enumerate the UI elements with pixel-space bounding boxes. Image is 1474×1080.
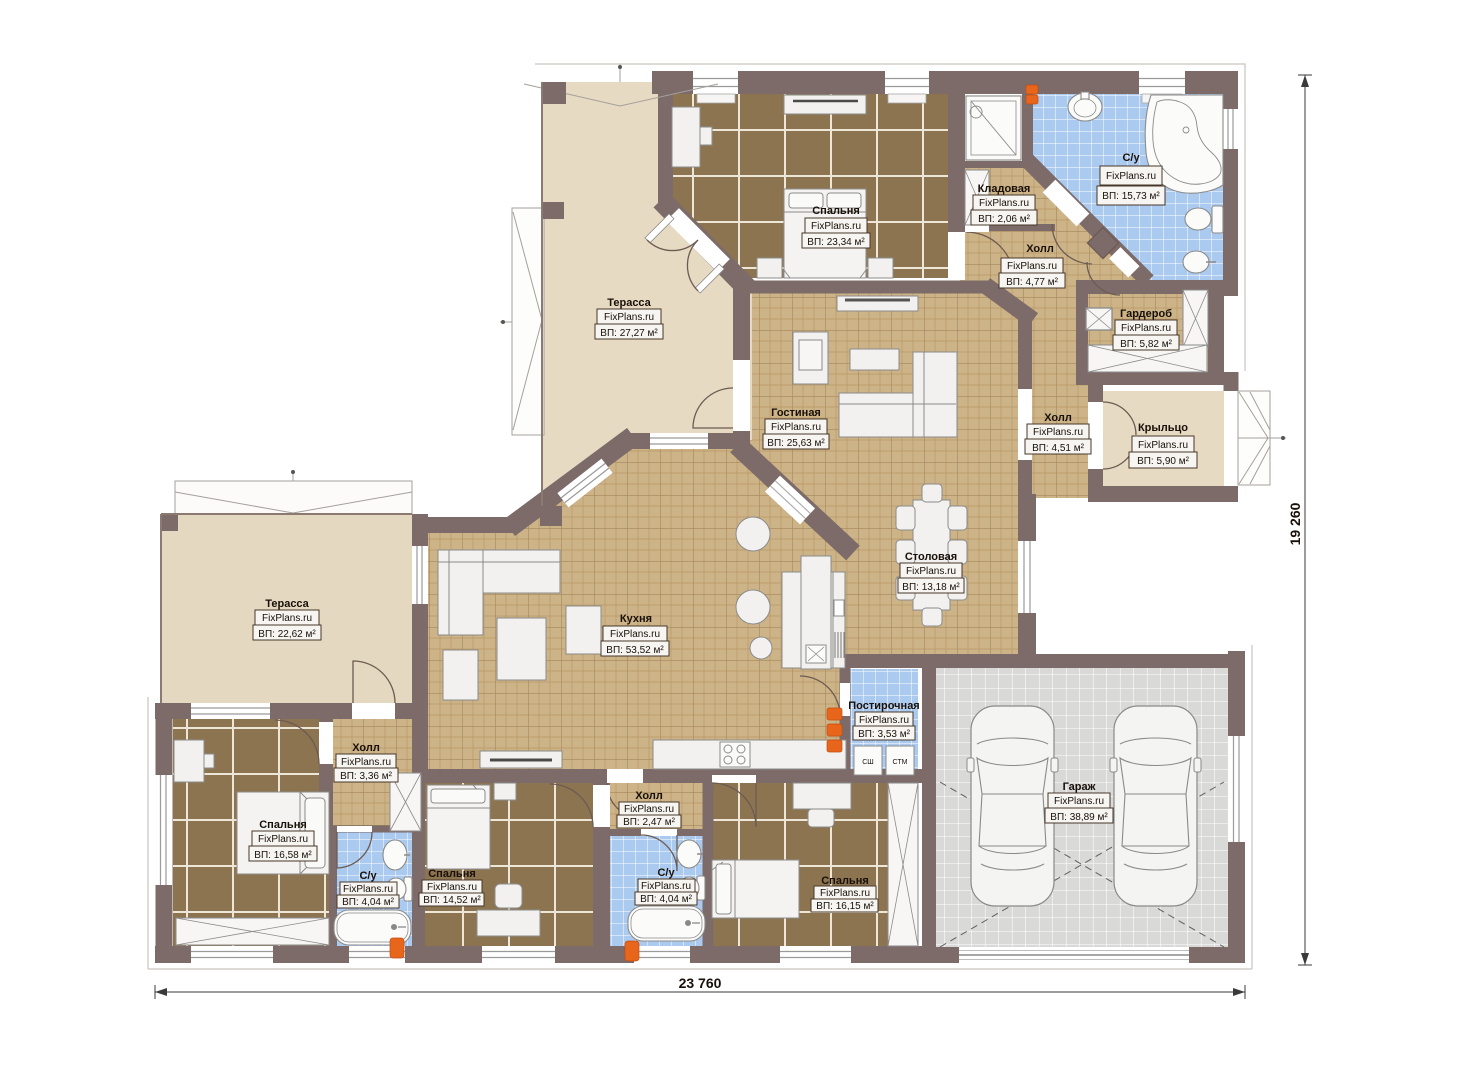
svg-text:ВП: 13,18 м²: ВП: 13,18 м² bbox=[902, 582, 960, 593]
svg-text:Гостиная: Гостиная bbox=[771, 407, 821, 419]
svg-text:FixPlans.ru: FixPlans.ru bbox=[341, 757, 391, 768]
svg-text:Холл: Холл bbox=[352, 742, 380, 754]
svg-text:Гардероб: Гардероб bbox=[1120, 308, 1172, 320]
svg-text:ВП: 27,27 м²: ВП: 27,27 м² bbox=[600, 328, 658, 339]
svg-text:FixPlans.ru: FixPlans.ru bbox=[343, 884, 393, 895]
svg-text:FixPlans.ru: FixPlans.ru bbox=[820, 888, 870, 899]
svg-text:ВП: 4,51 м²: ВП: 4,51 м² bbox=[1032, 443, 1085, 454]
svg-text:Спальня: Спальня bbox=[821, 875, 869, 887]
svg-text:ВП: 16,58 м²: ВП: 16,58 м² bbox=[254, 850, 312, 861]
svg-text:19 260: 19 260 bbox=[1287, 502, 1303, 545]
svg-text:Холл: Холл bbox=[1044, 412, 1072, 424]
svg-text:ВП: 4,04 м²: ВП: 4,04 м² bbox=[342, 897, 395, 908]
svg-text:FixPlans.ru: FixPlans.ru bbox=[859, 715, 909, 726]
svg-text:FixPlans.ru: FixPlans.ru bbox=[771, 422, 821, 433]
svg-text:Кухня: Кухня bbox=[620, 613, 652, 625]
svg-text:FixPlans.ru: FixPlans.ru bbox=[641, 881, 691, 892]
svg-text:ВП: 4,04 м²: ВП: 4,04 м² bbox=[640, 894, 693, 905]
svg-text:Холл: Холл bbox=[1026, 243, 1054, 255]
svg-text:ВП: 2,47 м²: ВП: 2,47 м² bbox=[623, 817, 676, 828]
svg-text:FixPlans.ru: FixPlans.ru bbox=[979, 198, 1029, 209]
svg-text:ВП: 38,89 м²: ВП: 38,89 м² bbox=[1050, 812, 1108, 823]
svg-text:FixPlans.ru: FixPlans.ru bbox=[1121, 323, 1171, 334]
svg-text:FixPlans.ru: FixPlans.ru bbox=[610, 629, 660, 640]
svg-text:Холл: Холл bbox=[635, 790, 663, 802]
svg-text:FixPlans.ru: FixPlans.ru bbox=[624, 804, 674, 815]
svg-text:Постирочная: Постирочная bbox=[848, 700, 919, 712]
svg-text:ВП: 25,63 м²: ВП: 25,63 м² bbox=[767, 438, 825, 449]
svg-text:Спальня: Спальня bbox=[812, 205, 860, 217]
svg-text:ВП: 23,34 м²: ВП: 23,34 м² bbox=[807, 237, 865, 248]
svg-text:FixPlans.ru: FixPlans.ru bbox=[906, 566, 956, 577]
svg-text:Терасса: Терасса bbox=[265, 598, 309, 610]
svg-text:ВП: 3,36 м²: ВП: 3,36 м² bbox=[340, 771, 393, 782]
svg-text:FixPlans.ru: FixPlans.ru bbox=[1106, 171, 1156, 182]
svg-text:Терасса: Терасса bbox=[607, 297, 651, 309]
svg-text:FixPlans.ru: FixPlans.ru bbox=[427, 882, 477, 893]
svg-text:FixPlans.ru: FixPlans.ru bbox=[1138, 440, 1188, 451]
svg-text:ВП: 4,77 м²: ВП: 4,77 м² bbox=[1006, 277, 1059, 288]
svg-text:ВП: 22,62 м²: ВП: 22,62 м² bbox=[258, 629, 316, 640]
svg-text:FixPlans.ru: FixPlans.ru bbox=[811, 221, 861, 232]
svg-text:ВП: 2,06 м²: ВП: 2,06 м² bbox=[978, 214, 1031, 225]
svg-text:Спальня: Спальня bbox=[428, 868, 476, 880]
svg-text:ВП: 16,15 м²: ВП: 16,15 м² bbox=[816, 901, 874, 912]
svg-text:FixPlans.ru: FixPlans.ru bbox=[1033, 427, 1083, 438]
svg-text:Спальня: Спальня bbox=[259, 819, 307, 831]
svg-text:Крыльцо: Крыльцо bbox=[1138, 422, 1188, 434]
svg-text:ВП: 15,73 м²: ВП: 15,73 м² bbox=[1102, 191, 1160, 202]
svg-text:FixPlans.ru: FixPlans.ru bbox=[258, 834, 308, 845]
svg-text:Кладовая: Кладовая bbox=[978, 183, 1031, 195]
svg-text:ВП: 5,90 м²: ВП: 5,90 м² bbox=[1137, 456, 1190, 467]
svg-text:С/у: С/у bbox=[657, 867, 675, 879]
svg-text:ВП: 53,52 м²: ВП: 53,52 м² bbox=[606, 645, 664, 656]
svg-text:СТМ: СТМ bbox=[893, 759, 908, 766]
svg-text:FixPlans.ru: FixPlans.ru bbox=[262, 613, 312, 624]
svg-text:Столовая: Столовая bbox=[905, 551, 957, 563]
svg-text:С/у: С/у bbox=[1122, 152, 1140, 164]
svg-text:23 760: 23 760 bbox=[679, 975, 722, 991]
svg-text:С/у: С/у bbox=[359, 870, 377, 882]
svg-text:ВП: 3,53 м²: ВП: 3,53 м² bbox=[858, 729, 911, 740]
svg-text:ВП: 5,82 м²: ВП: 5,82 м² bbox=[1120, 339, 1173, 350]
svg-text:FixPlans.ru: FixPlans.ru bbox=[1007, 261, 1057, 272]
svg-text:FixPlans.ru: FixPlans.ru bbox=[1054, 796, 1104, 807]
svg-text:Гараж: Гараж bbox=[1063, 781, 1096, 793]
svg-text:СШ: СШ bbox=[862, 759, 873, 766]
svg-text:FixPlans.ru: FixPlans.ru bbox=[604, 312, 654, 323]
svg-text:ВП: 14,52 м²: ВП: 14,52 м² bbox=[423, 895, 481, 906]
